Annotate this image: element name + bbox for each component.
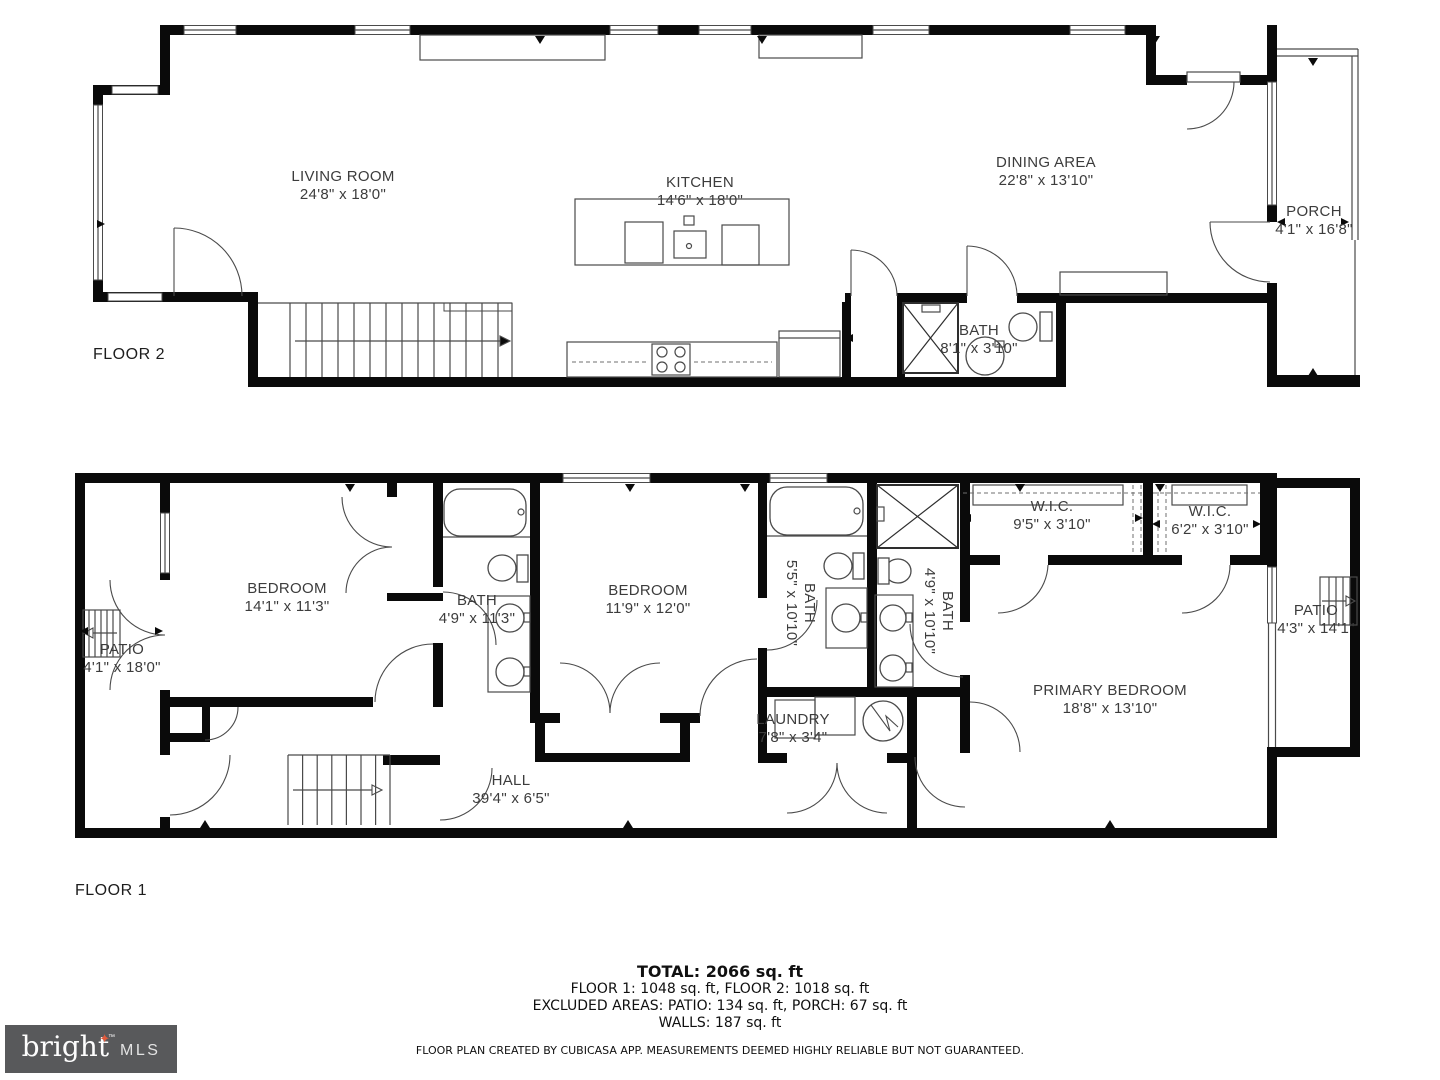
logo-suffix-text: MLS	[120, 1042, 160, 1060]
room-label-bedroom-2: BEDROOM 11'9" x 12'0"	[605, 582, 690, 618]
floor2-windows	[94, 26, 1277, 312]
bright-mls-logo: bright ✦ ™ MLS	[5, 1025, 177, 1073]
floor1-label: FLOOR 1	[75, 882, 147, 900]
room-label-dining-area: DINING AREA 22'8" x 13'10"	[996, 154, 1096, 190]
room-label-bath-floor2: BATH 8'1" x 3'10"	[940, 322, 1018, 358]
bath1-fixtures	[443, 489, 530, 692]
summary-walls: WALLS: 187 sq. ft	[0, 1015, 1440, 1032]
room-label-laundry: LAUNDRY 7'8" x 3'4"	[756, 711, 830, 747]
floor1-doors	[110, 497, 1230, 820]
kitchen-wall-cabinets	[420, 35, 1240, 295]
summary-floors: FLOOR 1: 1048 sq. ft, FLOOR 2: 1018 sq. …	[0, 981, 1440, 998]
summary-excluded: EXCLUDED AREAS: PATIO: 134 sq. ft, PORCH…	[0, 998, 1440, 1015]
room-label-bath-1: BATH 4'9" x 11'3"	[439, 592, 515, 628]
floor1-walls	[75, 473, 1360, 838]
floor2-label: FLOOR 2	[93, 346, 165, 364]
room-label-hall: HALL 39'4" x 6'5"	[472, 772, 550, 808]
logo-tm-mark: ™	[108, 1034, 115, 1041]
room-label-bath-3: BATH 4'9" x 10'10"	[920, 568, 956, 654]
area-summary: TOTAL: 2066 sq. ft FLOOR 1: 1048 sq. ft,…	[0, 962, 1440, 1032]
room-label-primary-bedroom: PRIMARY BEDROOM 18'8" x 13'10"	[1033, 682, 1187, 718]
room-label-kitchen: KITCHEN 14'6" x 18'0"	[657, 174, 743, 210]
summary-total: TOTAL: 2066 sq. ft	[0, 962, 1440, 981]
room-label-wic-2: W.I.C. 6'2" x 3'10"	[1171, 503, 1249, 539]
disclaimer-note: FLOOR PLAN CREATED BY CUBICASA APP. MEAS…	[0, 1044, 1440, 1057]
floor2-stairs	[258, 303, 512, 377]
room-label-bedroom-1: BEDROOM 14'1" x 11'3"	[244, 580, 329, 616]
floor-plan-page: LIVING ROOM 24'8" x 18'0" KITCHEN 14'6" …	[0, 0, 1440, 1080]
logo-brand-text: bright	[22, 1033, 109, 1061]
room-label-patio-left: PATIO 4'1" x 18'0"	[83, 641, 161, 677]
room-label-living-room: LIVING ROOM 24'8" x 18'0"	[291, 168, 394, 204]
floor1-hall-stairs	[288, 755, 390, 825]
room-label-patio-right: PATIO 4'3" x 14'1"	[1277, 602, 1355, 638]
room-label-porch: PORCH 4'1" x 16'8"	[1275, 203, 1353, 239]
floor-plan-drawing	[0, 0, 1440, 1080]
kitchen-counter	[567, 331, 840, 377]
room-label-bath-2: BATH 5'5" x 10'10"	[782, 560, 818, 646]
room-label-wic-1: W.I.C. 9'5" x 3'10"	[1013, 498, 1091, 534]
